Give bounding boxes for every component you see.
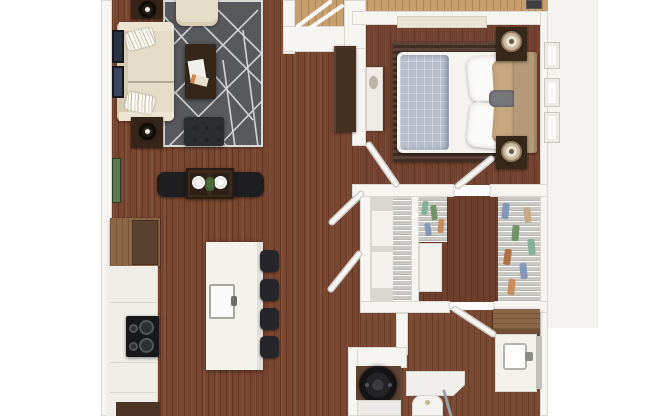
washer-dial-left xyxy=(365,383,369,387)
hanging-clothes xyxy=(437,219,444,233)
sofa-cushion-seam xyxy=(128,81,174,83)
window-3 xyxy=(544,112,560,143)
bar-stool-3 xyxy=(260,308,279,330)
wall-art-frame-1 xyxy=(112,30,124,63)
walkin-rod-right xyxy=(498,197,540,302)
window-2 xyxy=(544,78,560,107)
vanity-sink xyxy=(503,343,527,370)
dining-chair-left xyxy=(157,172,188,197)
hanging-clothes xyxy=(519,263,528,280)
bath-wood-cabinet xyxy=(493,309,540,334)
hanging-clothes xyxy=(424,223,432,237)
door-mat xyxy=(526,0,542,9)
bedroom-dresser-top xyxy=(397,16,487,28)
wall-closet-divider xyxy=(411,196,419,303)
sink-faucet xyxy=(525,352,533,361)
kitchen-base-cabinet-dark xyxy=(116,402,160,416)
armchair xyxy=(176,0,218,26)
sofa xyxy=(117,22,174,121)
burner-4 xyxy=(129,342,138,351)
wall-bedroom-bottom-b xyxy=(490,184,548,197)
washer-dial-right xyxy=(388,383,392,387)
burner-1 xyxy=(139,320,154,335)
cabinet-seam-3 xyxy=(110,392,156,393)
bedroom-lamp-bottom xyxy=(501,141,522,162)
burner-2 xyxy=(139,338,154,353)
island-faucet xyxy=(231,296,237,306)
bed-folded-duvet xyxy=(400,55,449,150)
hanging-clothes xyxy=(527,239,535,256)
hanging-clothes xyxy=(511,225,519,242)
bath-mirror xyxy=(536,336,542,389)
walkin-dresser xyxy=(419,243,442,292)
wall-entry-right xyxy=(344,0,366,52)
table-lamp-top xyxy=(139,1,156,18)
walkin-rod-left xyxy=(419,197,447,242)
wall-linen-closet-left xyxy=(360,196,371,303)
refrigerator xyxy=(132,220,158,265)
plate-right xyxy=(214,176,227,189)
hanging-clothes xyxy=(523,207,532,224)
floor-plan xyxy=(0,0,652,416)
hanging-clothes xyxy=(430,205,438,221)
cabinet-seam-2 xyxy=(110,362,156,363)
bedroom-lamp-top xyxy=(501,31,522,52)
hanging-clothes xyxy=(501,203,510,220)
hanging-clothes xyxy=(503,249,512,266)
shower-enclosure xyxy=(406,371,465,396)
cabinet-seam-1 xyxy=(110,302,156,303)
table-lamp-bottom xyxy=(139,123,156,140)
wall-closet-bottom-a xyxy=(360,301,450,313)
table-centerpiece xyxy=(205,177,215,191)
bar-stool-4 xyxy=(260,336,279,358)
bar-stool-1 xyxy=(260,250,279,272)
tall-green-art xyxy=(112,158,121,203)
toilet xyxy=(412,395,443,416)
dresser-decor-item xyxy=(369,76,378,89)
wall-art-frame-2 xyxy=(112,66,124,98)
bar-stool-2 xyxy=(260,279,279,301)
toilet-flush-button xyxy=(425,400,430,405)
hanging-clothes xyxy=(507,279,516,296)
hanging-clothes xyxy=(421,201,429,216)
exterior-walkway xyxy=(346,0,548,11)
bed-lumbar-pillow xyxy=(489,90,517,107)
entry-landing xyxy=(294,0,346,28)
entry-wardrobe xyxy=(334,46,356,132)
laundry-base-cabinet xyxy=(357,400,401,416)
burner-3 xyxy=(129,324,138,333)
window-1 xyxy=(544,42,560,69)
ottoman xyxy=(184,117,224,146)
dining-chair-right xyxy=(233,172,264,197)
plate-left xyxy=(192,176,205,189)
linen-wire-shelving xyxy=(393,198,411,301)
